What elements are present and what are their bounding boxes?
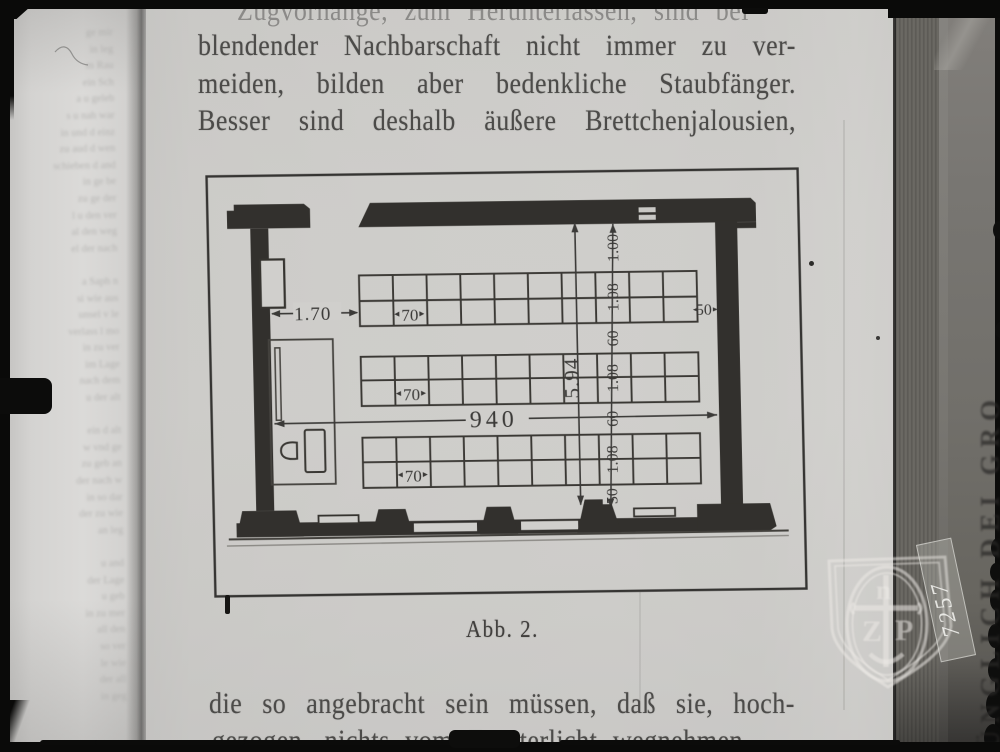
svg-text:60: 60 (605, 330, 622, 346)
svg-text:70: 70 (405, 467, 422, 486)
svg-text:1.00: 1.00 (605, 234, 623, 262)
svg-text:1.70: 1.70 (294, 304, 332, 326)
svg-text:n: n (876, 575, 891, 605)
svg-text:70: 70 (403, 385, 420, 404)
svg-text:50: 50 (604, 488, 621, 504)
svg-text:50: 50 (696, 302, 712, 319)
svg-text:60: 60 (605, 411, 622, 427)
svg-text:1.08: 1.08 (605, 283, 623, 311)
svg-text:940: 940 (469, 407, 518, 434)
svg-text:Z: Z (862, 615, 882, 648)
svg-text:P: P (895, 614, 913, 647)
svg-text:5.94: 5.94 (560, 357, 585, 398)
svg-text:1.08: 1.08 (605, 364, 623, 392)
svg-text:1.08: 1.08 (605, 445, 623, 473)
svg-text:70: 70 (401, 306, 418, 325)
